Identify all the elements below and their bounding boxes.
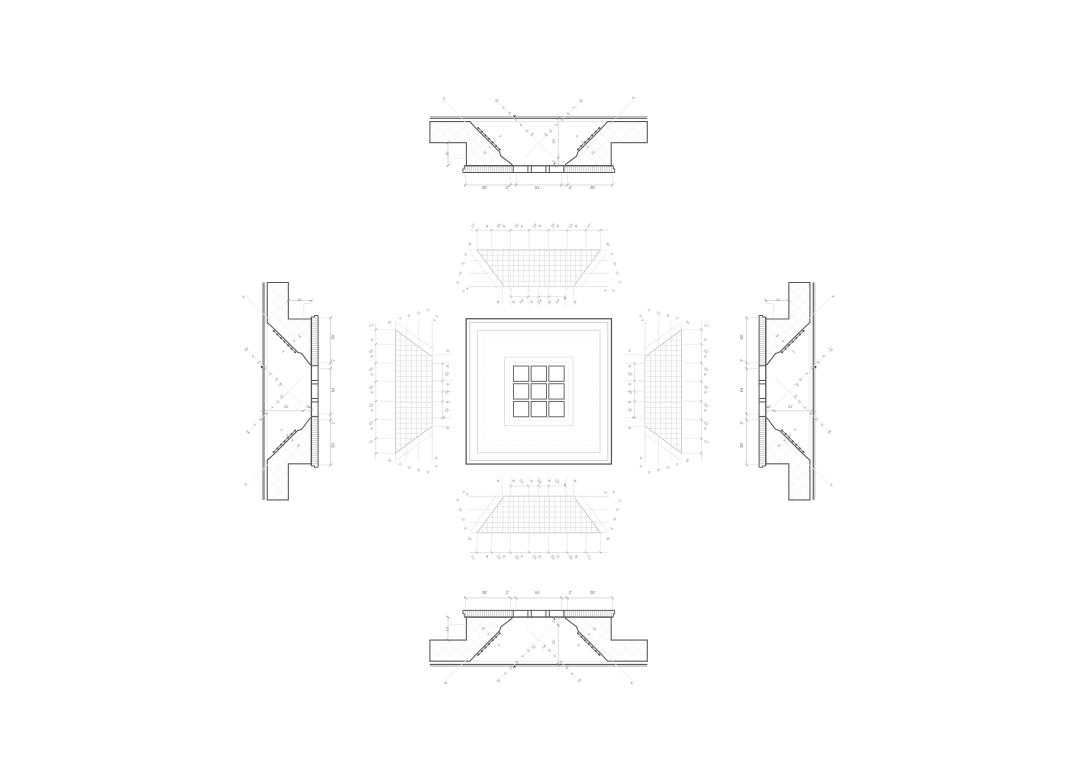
svg-text:14: 14	[277, 382, 283, 388]
svg-text:53': 53'	[552, 639, 556, 644]
svg-text:64: 64	[330, 387, 335, 392]
svg-text:2': 2'	[739, 358, 744, 361]
svg-text:4': 4'	[442, 96, 447, 101]
svg-text:64: 64	[739, 387, 744, 392]
svg-text:2: 2	[306, 404, 308, 408]
svg-text:2': 2'	[506, 185, 509, 190]
svg-text:0': 0'	[493, 140, 498, 145]
svg-text:38': 38'	[590, 590, 596, 595]
svg-text:38': 38'	[330, 442, 335, 448]
svg-text:53': 53'	[552, 138, 556, 143]
svg-text:14: 14	[529, 132, 535, 138]
svg-text:9': 9'	[280, 427, 285, 432]
svg-text:14: 14	[543, 132, 549, 138]
svg-text:9': 9'	[575, 134, 580, 139]
svg-text:38': 38'	[330, 334, 335, 340]
svg-text:53': 53'	[284, 405, 289, 409]
svg-text:2': 2'	[569, 590, 572, 595]
svg-text:4': 4'	[829, 482, 834, 487]
svg-text:4': 4'	[242, 294, 247, 299]
svg-text:38': 38'	[482, 590, 488, 595]
svg-text:9': 9'	[497, 643, 502, 648]
svg-text:38': 38'	[739, 334, 744, 340]
svg-text:9': 9'	[792, 349, 797, 354]
svg-text:9': 9'	[498, 134, 503, 139]
svg-text:4': 4'	[831, 294, 836, 299]
svg-text:14: 14	[541, 644, 547, 650]
svg-text:2: 2	[552, 620, 556, 622]
svg-text:10: 10	[446, 627, 450, 631]
svg-text:9': 9'	[576, 643, 581, 648]
svg-text:4': 4'	[631, 96, 636, 101]
svg-text:9': 9'	[281, 349, 286, 354]
svg-text:38': 38'	[482, 185, 488, 190]
svg-text:10: 10	[297, 298, 301, 302]
svg-text:2': 2'	[569, 185, 572, 190]
svg-text:2: 2	[769, 404, 771, 408]
svg-text:4': 4'	[443, 681, 448, 686]
svg-text:38': 38'	[590, 185, 596, 190]
svg-text:53': 53'	[788, 405, 793, 409]
svg-text:10: 10	[776, 298, 780, 302]
svg-text:64: 64	[535, 185, 540, 190]
svg-text:2: 2	[552, 160, 556, 162]
svg-text:2': 2'	[506, 590, 509, 595]
svg-text:38': 38'	[739, 442, 744, 448]
svg-text:14: 14	[793, 394, 799, 400]
svg-text:14: 14	[794, 382, 800, 388]
svg-text:14: 14	[531, 644, 537, 650]
svg-text:10: 10	[446, 152, 450, 156]
svg-text:2': 2'	[739, 421, 744, 424]
svg-text:4': 4'	[630, 681, 635, 686]
svg-text:2': 2'	[330, 421, 335, 424]
svg-text:4': 4'	[243, 482, 248, 487]
svg-text:64: 64	[535, 590, 540, 595]
svg-text:9': 9'	[793, 427, 798, 432]
svg-text:2': 2'	[330, 358, 335, 361]
svg-text:14: 14	[279, 394, 285, 400]
